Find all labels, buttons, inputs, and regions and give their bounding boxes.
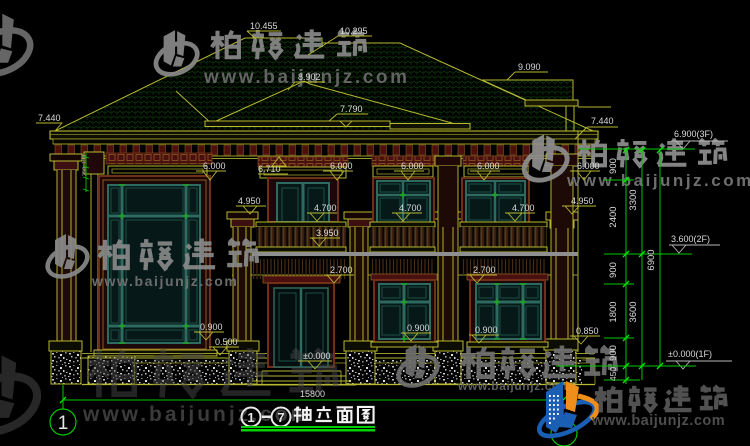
svg-text:6.000: 6.000 xyxy=(330,161,353,171)
svg-text:6.000: 6.000 xyxy=(477,161,500,171)
svg-text:3.950: 3.950 xyxy=(316,228,339,238)
svg-text:9.090: 9.090 xyxy=(518,62,541,72)
svg-text:7: 7 xyxy=(277,410,284,425)
svg-text:±0.000: ±0.000 xyxy=(303,351,330,361)
svg-text:2400: 2400 xyxy=(608,206,619,227)
svg-text:450: 450 xyxy=(608,367,618,381)
svg-text:150: 150 xyxy=(82,155,88,164)
svg-text:4.700: 4.700 xyxy=(512,203,535,213)
svg-text:6.000: 6.000 xyxy=(203,161,226,171)
svg-text:6.000: 6.000 xyxy=(577,161,600,171)
svg-text:1: 1 xyxy=(247,410,254,425)
svg-text:1: 1 xyxy=(58,413,69,434)
svg-text:900: 900 xyxy=(608,262,619,278)
svg-text:4.950: 4.950 xyxy=(238,196,261,206)
svg-text:3.600(2F): 3.600(2F) xyxy=(671,234,710,244)
svg-text:15800: 15800 xyxy=(300,389,325,399)
svg-text:3300: 3300 xyxy=(628,189,639,210)
svg-text:±0.000(1F): ±0.000(1F) xyxy=(668,349,712,359)
svg-text:7.440: 7.440 xyxy=(38,113,61,123)
svg-text:www.baijunjz.com: www.baijunjz.com xyxy=(566,171,750,190)
svg-text:6.710: 6.710 xyxy=(258,164,281,174)
svg-text:7.790: 7.790 xyxy=(340,104,363,114)
svg-text:900: 900 xyxy=(608,158,619,174)
svg-text:10.295: 10.295 xyxy=(340,26,368,36)
svg-text:6.900(3F): 6.900(3F) xyxy=(674,129,713,139)
svg-text:4.700: 4.700 xyxy=(399,203,422,213)
svg-text:250: 250 xyxy=(82,167,88,176)
svg-text:0.850: 0.850 xyxy=(576,326,599,336)
svg-text:0.900: 0.900 xyxy=(200,322,223,332)
svg-text:0.500: 0.500 xyxy=(215,337,238,347)
svg-text:6.000: 6.000 xyxy=(401,161,424,171)
svg-text:4.700: 4.700 xyxy=(314,203,337,213)
svg-text:7.440: 7.440 xyxy=(591,116,614,126)
svg-text:www.baijunjz.com: www.baijunjz.com xyxy=(591,413,725,429)
svg-text:10.455: 10.455 xyxy=(250,21,278,31)
svg-text:0.900: 0.900 xyxy=(475,325,498,335)
svg-text:2.700: 2.700 xyxy=(473,265,496,275)
svg-text:900: 900 xyxy=(608,345,619,361)
svg-text:0.900: 0.900 xyxy=(407,323,430,333)
svg-text:2.700: 2.700 xyxy=(330,265,353,275)
svg-text:3600: 3600 xyxy=(628,301,639,322)
svg-text:4.950: 4.950 xyxy=(571,196,594,206)
svg-text:6900: 6900 xyxy=(646,249,657,270)
svg-text:www.baijunjz.com: www.baijunjz.com xyxy=(91,273,238,289)
svg-text:1800: 1800 xyxy=(608,301,619,322)
svg-text:8.902: 8.902 xyxy=(298,72,321,82)
